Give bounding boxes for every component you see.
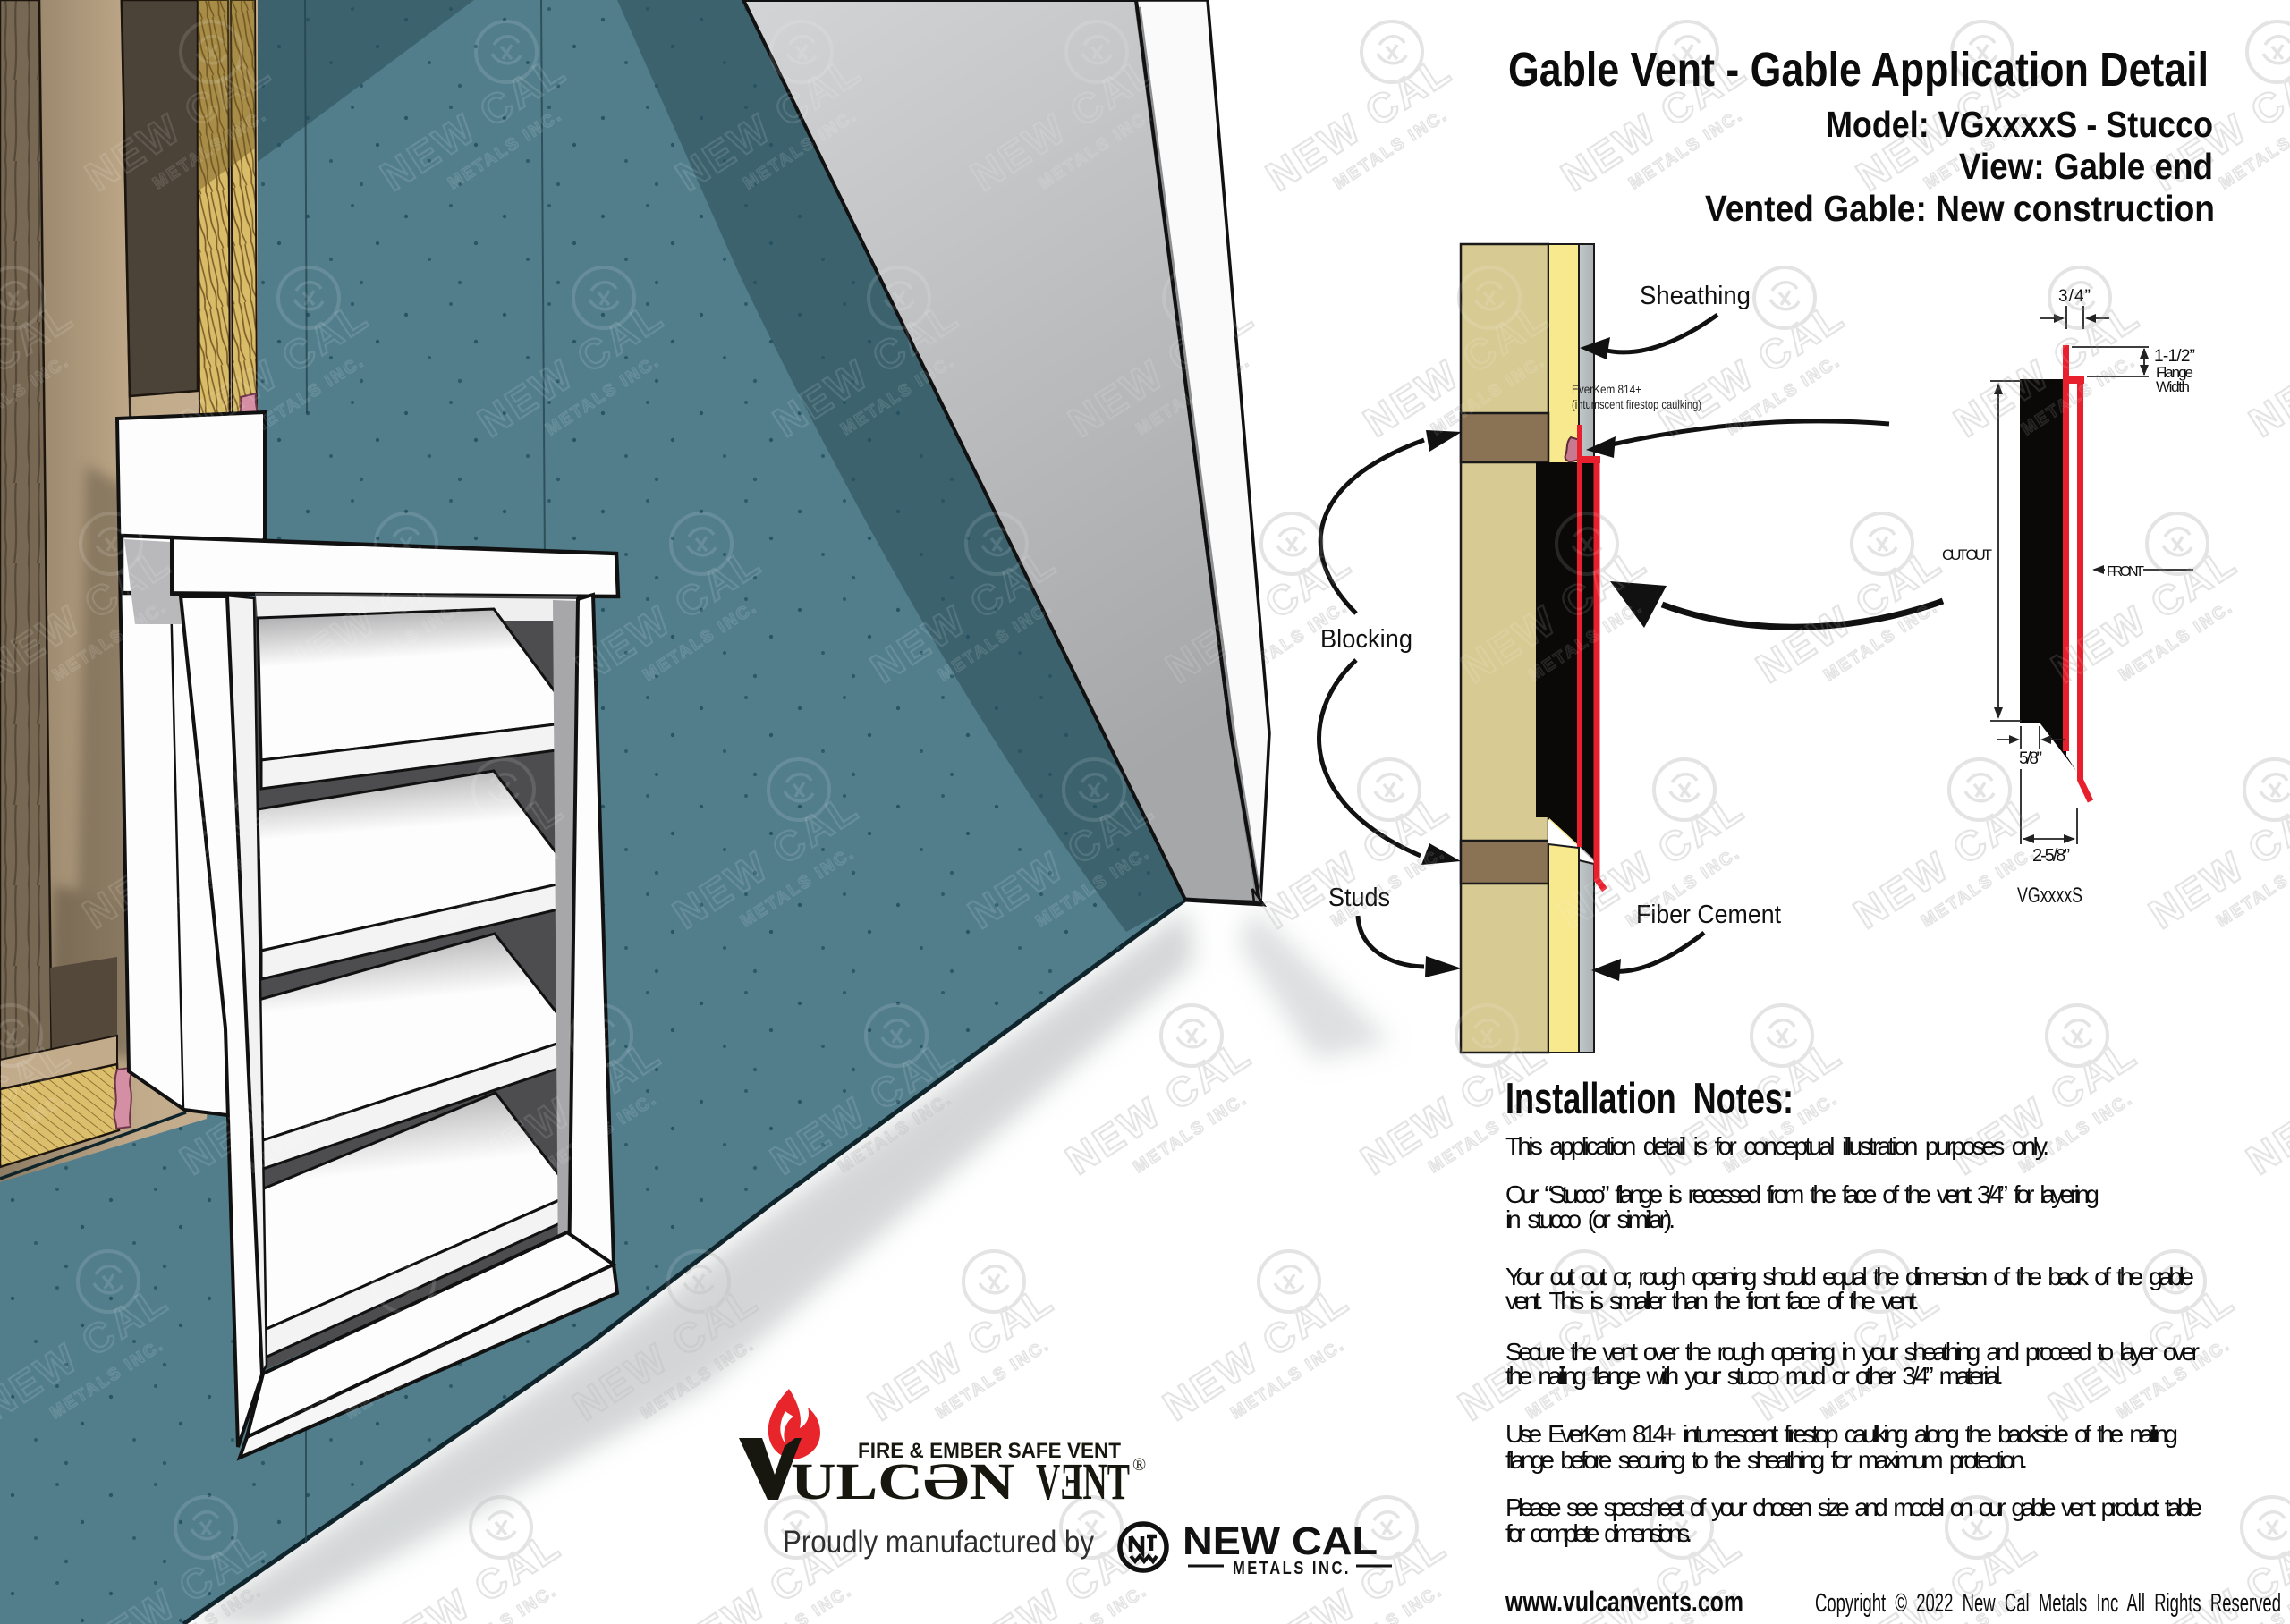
svg-text:flange before securing to the: flange before securing to the sheathing … [1505,1446,2028,1474]
svg-text:for complete dimensions.: for complete dimensions. [1505,1519,1692,1547]
svg-text:Blocking: Blocking [1320,625,1412,654]
svg-text:Model: VGxxxxS - Stucco: Model: VGxxxxS - Stucco [1826,104,2213,145]
svg-text:EverKem 814+: EverKem 814+ [1572,382,1641,396]
svg-text:Sheathing: Sheathing [1640,282,1751,310]
svg-text:NEW CAL: NEW CAL [1183,1519,1378,1563]
svg-text:vent. This is smaller than the: vent. This is smaller than the front fac… [1505,1287,1920,1315]
svg-text:2-5/8”: 2-5/8” [2032,846,2070,866]
svg-text:3/4”: 3/4” [2058,287,2091,306]
svg-text:www.vulcanvents.com: www.vulcanvents.com [1505,1586,1743,1618]
svg-text:in stucco (or similar).: in stucco (or similar). [1505,1205,1675,1233]
svg-text:Proudly manufactured by: Proudly manufactured by [783,1525,1094,1560]
svg-text:METALS INC.: METALS INC. [1233,1559,1351,1578]
svg-text:Vented Gable: New construction: Vented Gable: New construction [1705,188,2215,229]
svg-text:5/8”: 5/8” [2019,749,2042,768]
svg-text:1-1/2”: 1-1/2” [2154,347,2195,366]
svg-text:CUT OUT: CUT OUT [1942,546,1992,563]
svg-text:®: ® [1132,1455,1146,1475]
svg-text:Please see specsheet of your c: Please see specsheet of your chosen size… [1505,1493,2202,1521]
svg-text:Use EverKem 814+ intumescent f: Use EverKem 814+ intumescent firestop ca… [1505,1420,2178,1448]
svg-text:Width: Width [2156,378,2190,395]
svg-text:View: Gable end: View: Gable end [1959,146,2213,187]
svg-text:FIRE & EMBER SAFE VENT: FIRE & EMBER SAFE VENT [858,1439,1121,1463]
svg-text:Our “Stucco” flange is recesse: Our “Stucco” flange is recessed from the… [1505,1180,2099,1208]
svg-text:This application detail is for: This application detail is for conceptua… [1505,1132,2049,1160]
svg-text:FRONT: FRONT [2107,564,2144,579]
svg-text:VGxxxxS: VGxxxxS [2017,884,2082,908]
svg-text:Installation Notes:: Installation Notes: [1505,1075,1794,1123]
svg-text:the nailing flange with your s: the nailing flange with your stucco mud … [1505,1362,2004,1390]
svg-text:Gable Vent - Gable Application: Gable Vent - Gable Application Detail [1508,43,2209,97]
svg-text:Copyright © 2022 New Cal Metal: Copyright © 2022 New Cal Metals Inc All … [1815,1589,2281,1618]
